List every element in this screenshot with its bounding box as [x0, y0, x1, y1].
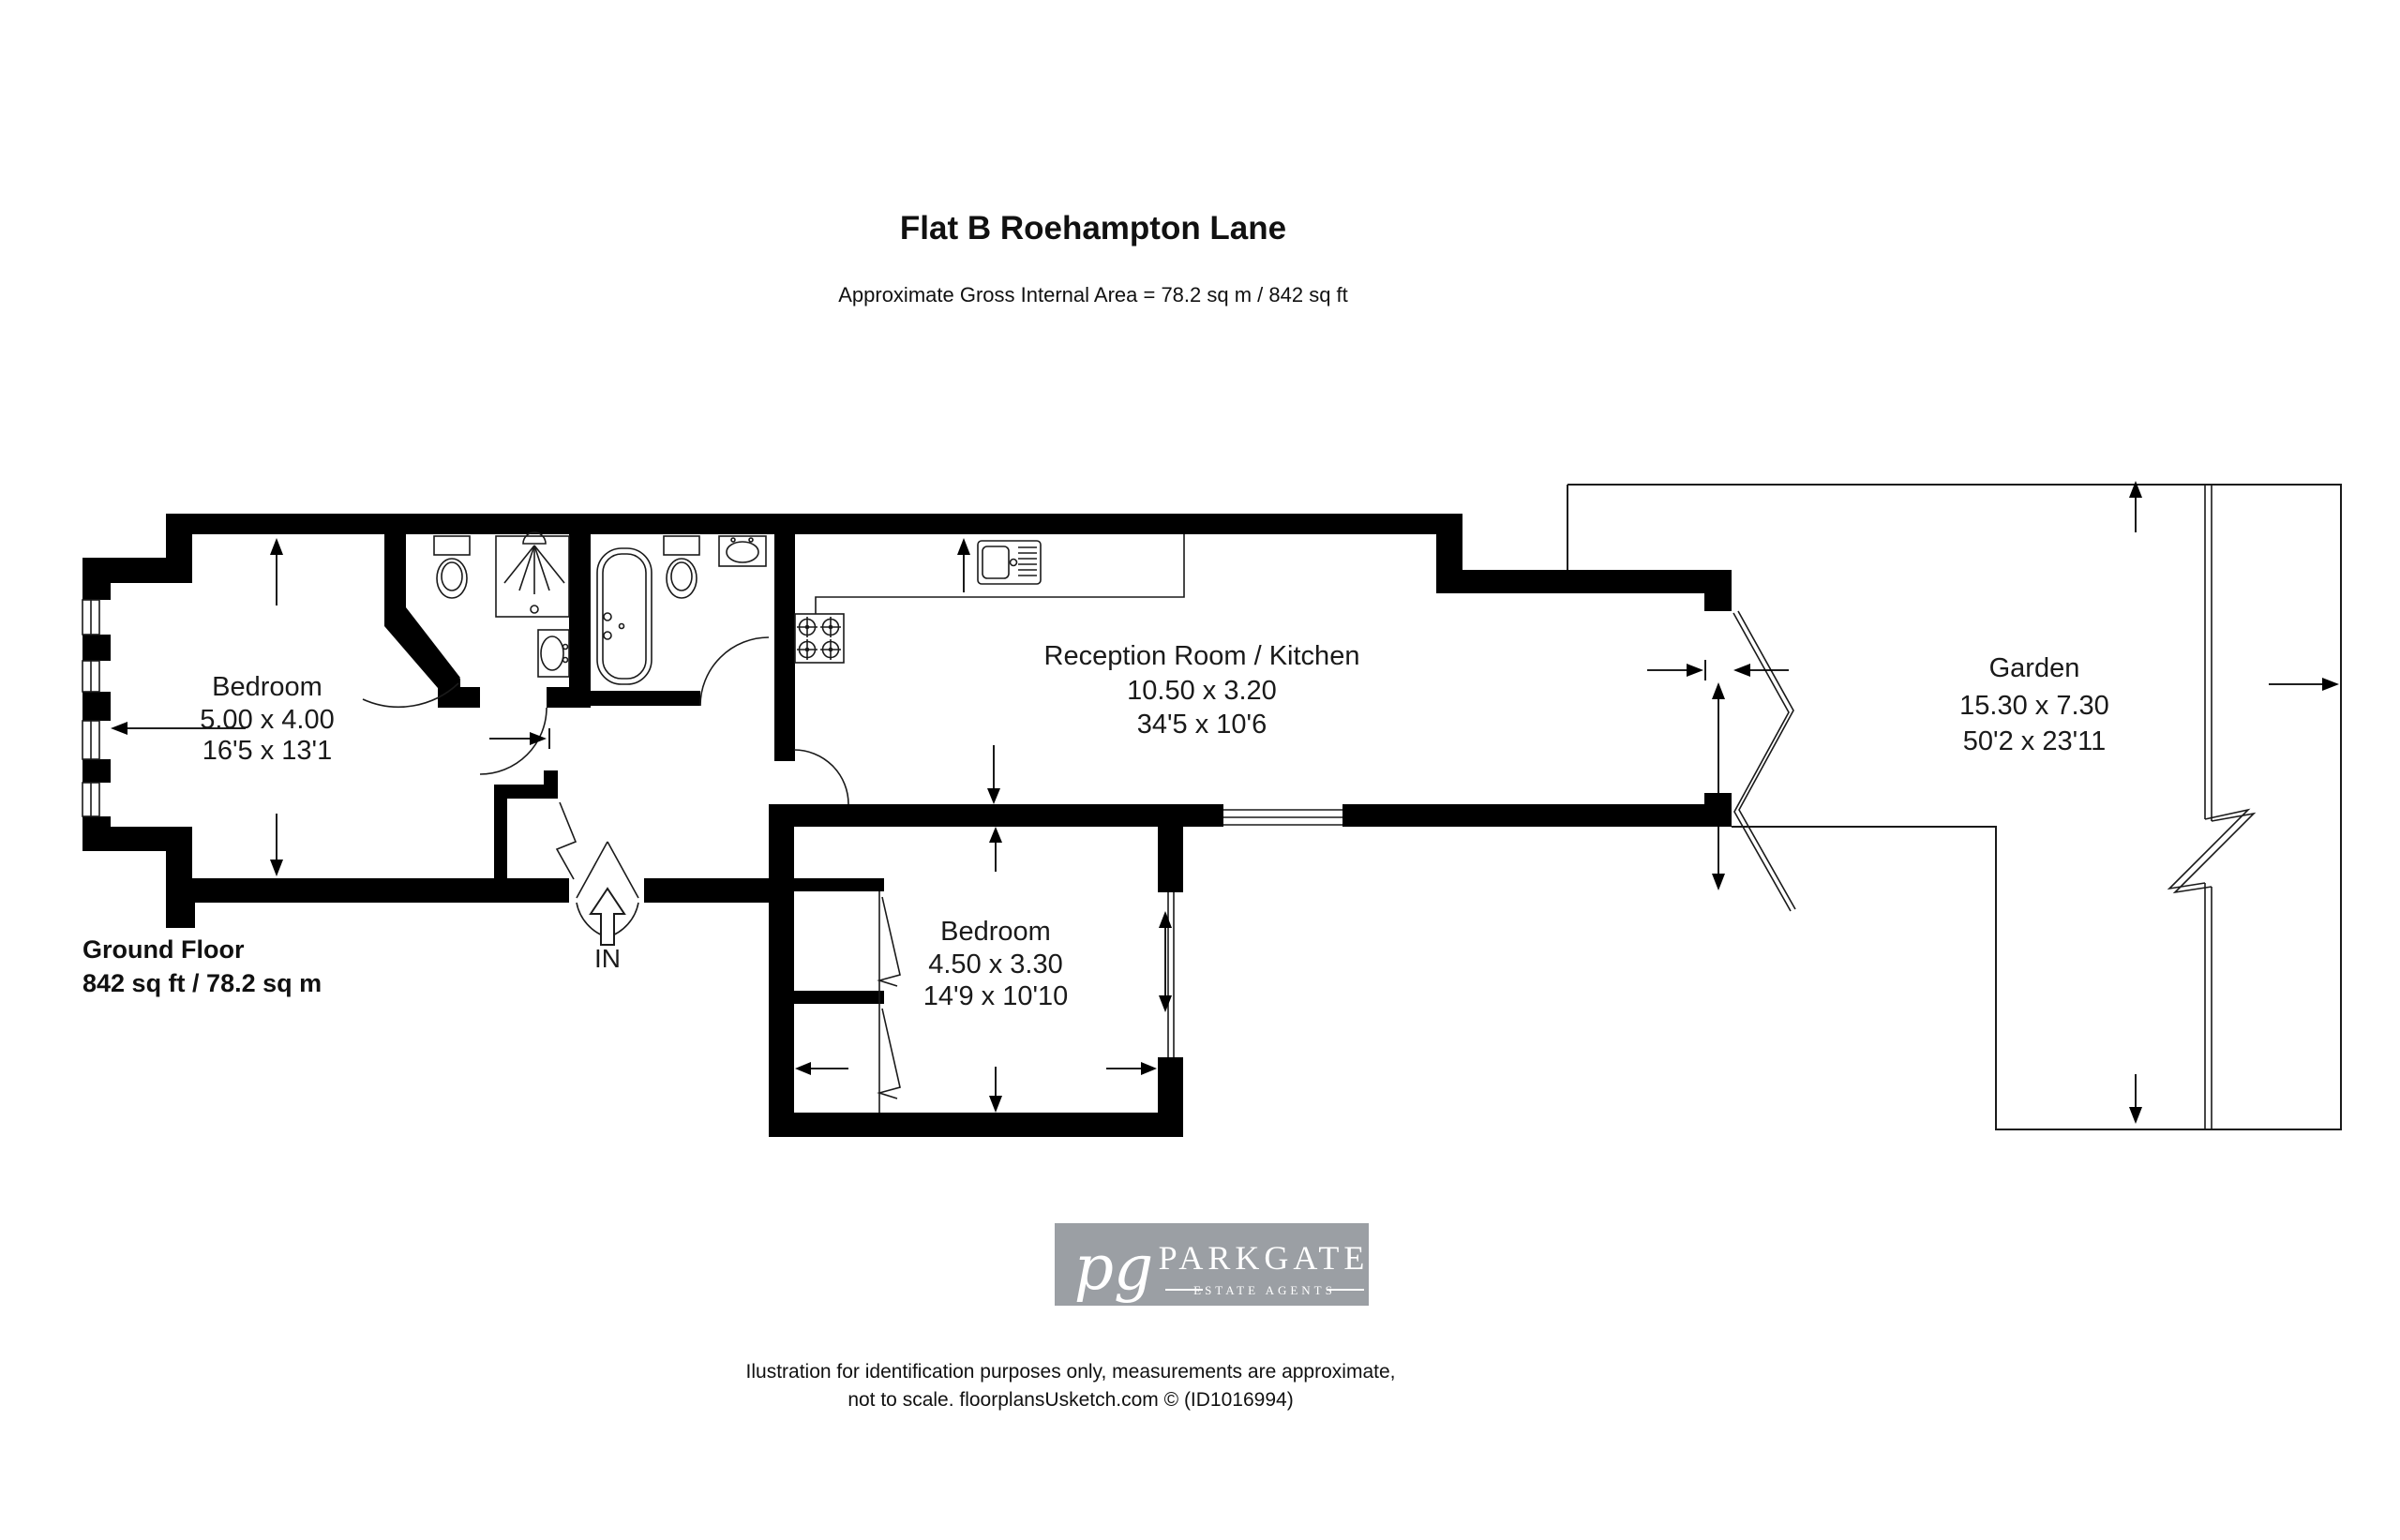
- shower-icon: [496, 532, 569, 617]
- basin-icon: [538, 630, 569, 677]
- footer-disclaimer: Ilustration for identification purposes …: [746, 1361, 1396, 1411]
- floorplan-canvas: Flat B Roehampton Lane Approximate Gross…: [0, 0, 2400, 1540]
- floor-area: 842 sq ft / 78.2 sq m: [82, 969, 322, 997]
- reception-door-arc: [794, 750, 848, 804]
- bedroom2-label: Bedroom 4.50 x 3.30 14'9 x 10'10: [923, 917, 1069, 1011]
- closet-door-1: [879, 897, 900, 986]
- entrance-label: IN: [594, 944, 621, 973]
- page-title: Flat B Roehampton Lane: [900, 210, 1286, 247]
- garden-label: Garden 15.30 x 7.30 50'2 x 23'11: [1959, 653, 2109, 756]
- floor-label-block: Ground Floor 842 sq ft / 78.2 sq m: [82, 935, 322, 997]
- svg-text:Bedroom: Bedroom: [212, 672, 322, 702]
- floor-name: Ground Floor: [82, 935, 245, 964]
- floorplan-page: Flat B Roehampton Lane Approximate Gross…: [0, 0, 2400, 1540]
- svg-text:Garden: Garden: [1989, 653, 2080, 683]
- page-subtitle: Approximate Gross Internal Area = 78.2 s…: [838, 283, 1348, 307]
- bedroom2-window: [1168, 892, 1174, 1057]
- svg-text:Bedroom: Bedroom: [940, 917, 1051, 947]
- svg-text:14'9 x 10'10: 14'9 x 10'10: [923, 981, 1069, 1011]
- svg-text:15.30 x 7.30: 15.30 x 7.30: [1959, 691, 2109, 721]
- agent-logo: pg PARKGATE ESTATE AGENTS: [1055, 1223, 1369, 1306]
- logo-initials: pg: [1074, 1232, 1154, 1304]
- toilet-icon: [434, 536, 470, 598]
- kitchen-sink-icon: [978, 541, 1041, 584]
- svg-text:10.50 x 3.20: 10.50 x 3.20: [1127, 676, 1277, 706]
- svg-text:Reception Room / Kitchen: Reception Room / Kitchen: [1044, 641, 1360, 671]
- dimension-arrows: [111, 481, 2339, 1124]
- basin-icon: [719, 536, 766, 566]
- title-block: Flat B Roehampton Lane Approximate Gross…: [838, 210, 1348, 307]
- svg-text:34'5 x 10'6: 34'5 x 10'6: [1137, 710, 1267, 740]
- reception-window: [1223, 810, 1342, 825]
- hob-icon: [795, 614, 844, 663]
- toilet-icon: [664, 536, 699, 598]
- logo-tagline: ESTATE AGENTS: [1193, 1283, 1336, 1297]
- garden-door-open: [1733, 611, 1795, 911]
- closet-door-2: [879, 1009, 900, 1099]
- bedroom1-label: Bedroom 5.00 x 4.00 16'5 x 13'1: [200, 672, 335, 766]
- footer-line-2: not to scale. floorplansUsketch.com © (I…: [847, 1389, 1293, 1411]
- logo-name: PARKGATE: [1159, 1239, 1370, 1277]
- closet-door-hall: [557, 802, 576, 879]
- entrance-arrow-icon: [591, 889, 624, 945]
- svg-text:5.00 x 4.00: 5.00 x 4.00: [200, 705, 335, 735]
- svg-text:4.50 x 3.30: 4.50 x 3.30: [928, 949, 1063, 979]
- reception-label: Reception Room / Kitchen 10.50 x 3.20 34…: [1044, 641, 1360, 740]
- flat-walls: [82, 514, 1732, 1137]
- svg-text:50'2 x 23'11: 50'2 x 23'11: [1963, 726, 2106, 756]
- bathtub-icon: [597, 548, 652, 684]
- svg-text:16'5 x 13'1: 16'5 x 13'1: [202, 736, 332, 766]
- footer-line-1: Ilustration for identification purposes …: [746, 1361, 1396, 1383]
- bathroom2-door-arc: [700, 637, 769, 706]
